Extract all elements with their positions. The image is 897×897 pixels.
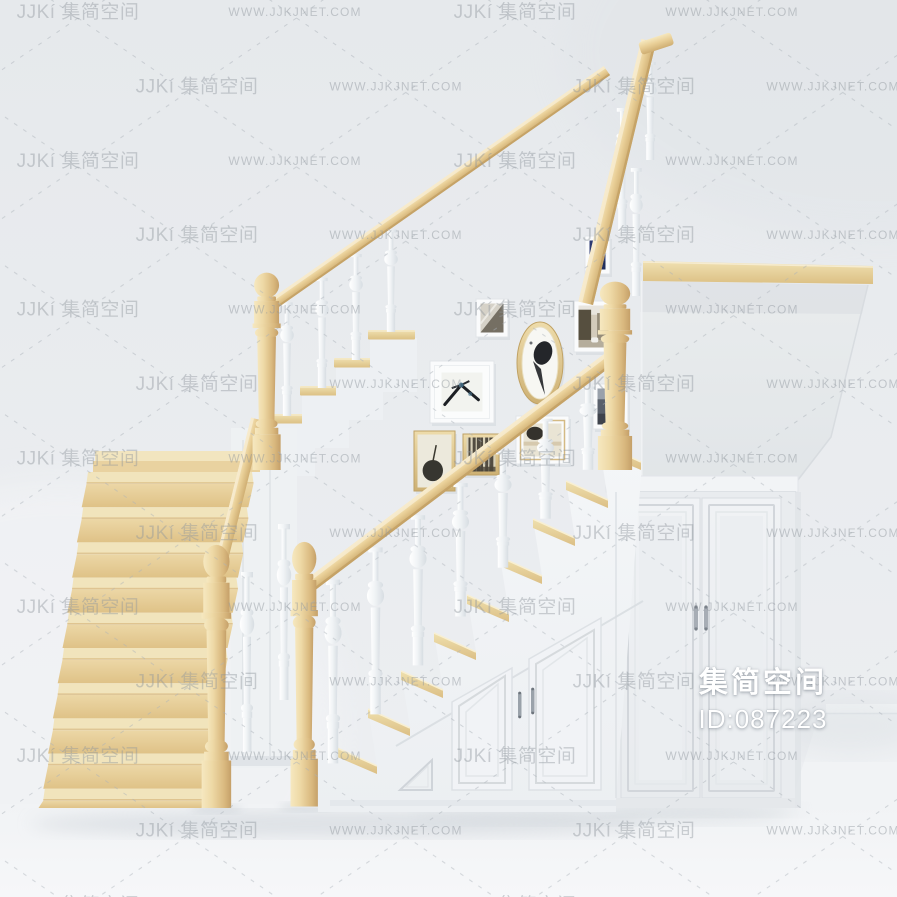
- watermark-logo-text: JJKí 集简空间: [454, 299, 577, 321]
- watermark-site-text: WWW.JJKJNET.COM: [665, 600, 798, 614]
- watermark-logo-text: JJKí 集简空间: [17, 447, 140, 469]
- watermark-logo-text: JJKí 集简空间: [573, 671, 696, 693]
- watermark-logo-text: JJKí 集简空间: [454, 447, 577, 469]
- watermark-logo-text: JJKí 集简空间: [573, 819, 696, 841]
- staircase-render: JJKí 集简空间JJKí 集简空间WWW.JJKJNET.COMWWW.JJK…: [0, 0, 897, 897]
- watermark-logo-text: JJKí 集简空间: [454, 1, 577, 23]
- watermark-logo-text: JJKí 集简空间: [136, 373, 259, 395]
- watermark-logo-text: JJKí 集简空间: [573, 75, 696, 97]
- watermark-site-text: WWW.JJKJNET.COM: [228, 749, 361, 763]
- watermark-site-text: WWW.JJKJNET.COM: [228, 600, 361, 614]
- watermark-logo-text: JJKí 集简空间: [17, 1, 140, 23]
- watermark-logo-text: JJKí 集简空间: [573, 373, 696, 395]
- watermark-logo-text: JJKí 集简空间: [136, 819, 259, 841]
- watermark-site-text: WWW.JJKJNET.COM: [665, 303, 798, 317]
- watermark-site-text: WWW.JJKJNET.COM: [329, 79, 462, 93]
- watermark-logo-text: JJKí 集简空间: [454, 150, 577, 172]
- watermark-site-text: WWW.JJKJNET.COM: [329, 228, 462, 242]
- watermark-logo-text: JJKí 集简空间: [573, 522, 696, 544]
- watermark-logo-text: JJKí 集简空间: [17, 596, 140, 618]
- watermark-site-text: WWW.JJKJNET.COM: [228, 303, 361, 317]
- watermark-site-text: WWW.JJKJNET.COM: [665, 5, 798, 19]
- watermark-layer: JJKí 集简空间JJKí 集简空间WWW.JJKJNET.COMWWW.JJK…: [0, 0, 897, 897]
- watermark-site-text: WWW.JJKJNET.COM: [665, 451, 798, 465]
- watermark-site-text: WWW.JJKJNET.COM: [766, 79, 897, 93]
- watermark-site-text: WWW.JJKJNET.COM: [766, 228, 897, 242]
- watermark-site-text: WWW.JJKJNET.COM: [329, 526, 462, 540]
- brand-label: 集简空间: [687, 666, 839, 700]
- model-id-label: ID:087223: [687, 704, 839, 734]
- watermark-site-text: WWW.JJKJNET.COM: [228, 5, 361, 19]
- watermark-logo-text: JJKí 集简空间: [454, 745, 577, 767]
- watermark-logo-text: JJKí 集简空间: [136, 224, 259, 246]
- watermark-site-text: WWW.JJKJNET.COM: [228, 154, 361, 168]
- watermark-logo-text: JJKí 集简空间: [136, 671, 259, 693]
- watermark-logo-text: JJKí 集简空间: [136, 75, 259, 97]
- watermark-site-text: WWW.JJKJNET.COM: [329, 675, 462, 689]
- watermark-logo-text: JJKí 集简空间: [17, 745, 140, 767]
- watermark-logo-text: JJKí 集简空间: [136, 522, 259, 544]
- watermark-logo-text: JJKí 集简空间: [17, 299, 140, 321]
- watermark-site-text: WWW.JJKJNET.COM: [329, 823, 462, 837]
- watermark-site-text: WWW.JJKJNET.COM: [766, 526, 897, 540]
- watermark-site-text: WWW.JJKJNET.COM: [766, 823, 897, 837]
- watermark-site-text: WWW.JJKJNET.COM: [665, 154, 798, 168]
- watermark-site-text: WWW.JJKJNET.COM: [665, 749, 798, 763]
- watermark-logo-text: JJKí 集简空间: [17, 150, 140, 172]
- watermark-logo-text: JJKí 集简空间: [573, 224, 696, 246]
- watermark-id-badge: 集简空间 ID:087223: [687, 666, 839, 734]
- watermark-site-text: WWW.JJKJNET.COM: [228, 451, 361, 465]
- watermark-site-text: WWW.JJKJNET.COM: [766, 377, 897, 391]
- watermark-site-text: WWW.JJKJNET.COM: [329, 377, 462, 391]
- watermark-logo-text: JJKí 集简空间: [454, 596, 577, 618]
- render-viewport: JJKí 集简空间JJKí 集简空间WWW.JJKJNET.COMWWW.JJK…: [0, 0, 897, 897]
